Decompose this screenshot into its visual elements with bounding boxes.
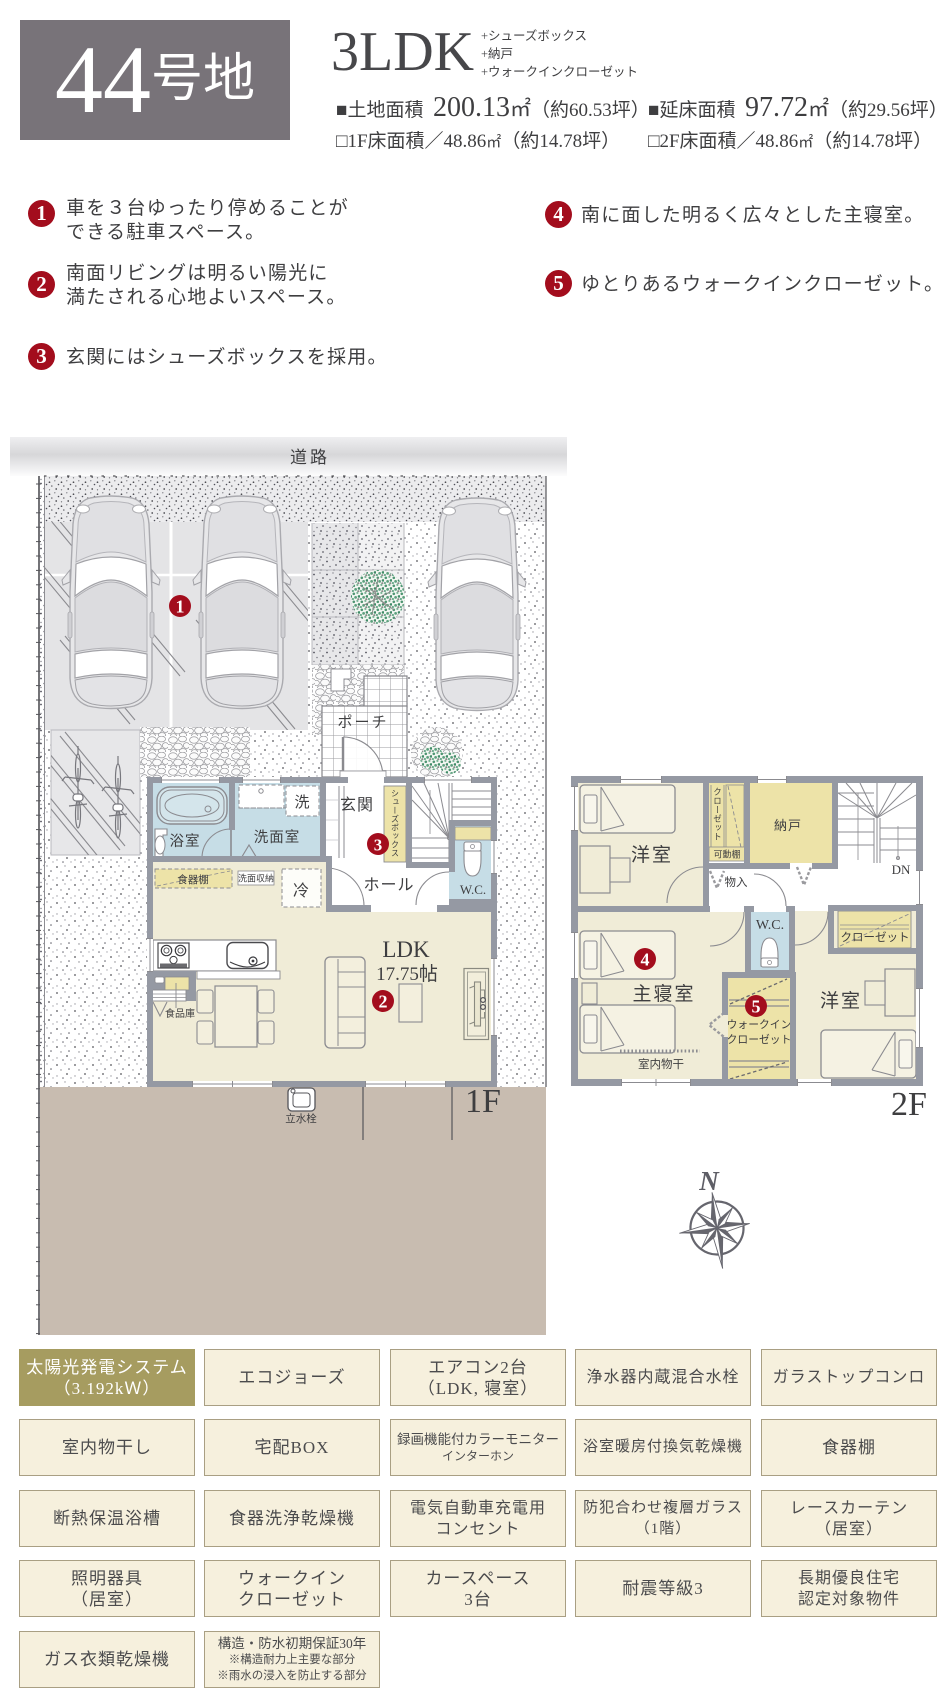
svg-text:5: 5 (752, 997, 761, 1017)
svg-text:ポーチ: ポーチ (337, 714, 388, 731)
svg-text:LDK: LDK (382, 937, 430, 962)
svg-text:立水栓: 立水栓 (285, 1112, 317, 1125)
svg-text:食品庫: 食品庫 (165, 1007, 195, 1020)
svg-text:2: 2 (379, 992, 388, 1012)
svg-text:可動棚: 可動棚 (713, 849, 740, 860)
svg-text:浴室: 浴室 (170, 833, 201, 850)
svg-text:洋室: 洋室 (631, 844, 673, 866)
svg-text:玄関: 玄関 (340, 796, 374, 814)
svg-text:2F: 2F (891, 1086, 927, 1123)
svg-text:洋室: 洋室 (820, 990, 862, 1012)
svg-text:4: 4 (641, 950, 650, 970)
svg-text:W.C.: W.C. (756, 918, 784, 933)
svg-text:クローゼット: クローゼット (841, 931, 910, 944)
svg-text:シューズボックス: シューズボックス (391, 789, 400, 857)
svg-text:DN: DN (892, 862, 911, 877)
svg-text:クローゼット: クローゼット (727, 1033, 792, 1046)
svg-text:主寝室: 主寝室 (632, 983, 695, 1005)
svg-text:ウォークイン: ウォークイン (727, 1018, 792, 1031)
svg-text:W.C.: W.C. (460, 882, 486, 897)
svg-text:道路: 道路 (290, 448, 330, 467)
svg-text:1F: 1F (465, 1083, 501, 1120)
svg-text:食器棚: 食器棚 (177, 873, 209, 886)
svg-text:室内物干: 室内物干 (638, 1057, 684, 1071)
svg-text:洗: 洗 (294, 794, 309, 811)
svg-text:洗面収納: 洗面収納 (238, 873, 274, 884)
svg-text:ホール: ホール (363, 877, 414, 894)
svg-text:N: N (698, 1166, 720, 1196)
svg-text:物入: 物入 (725, 875, 748, 889)
svg-text:洗面室: 洗面室 (254, 829, 301, 846)
svg-text:17.75帖: 17.75帖 (376, 963, 438, 985)
svg-text:1: 1 (176, 597, 185, 617)
svg-text:クローゼット: クローゼット (713, 787, 723, 841)
svg-text:冷: 冷 (293, 882, 309, 900)
svg-text:3: 3 (374, 836, 383, 855)
svg-text:納戸: 納戸 (774, 818, 802, 833)
